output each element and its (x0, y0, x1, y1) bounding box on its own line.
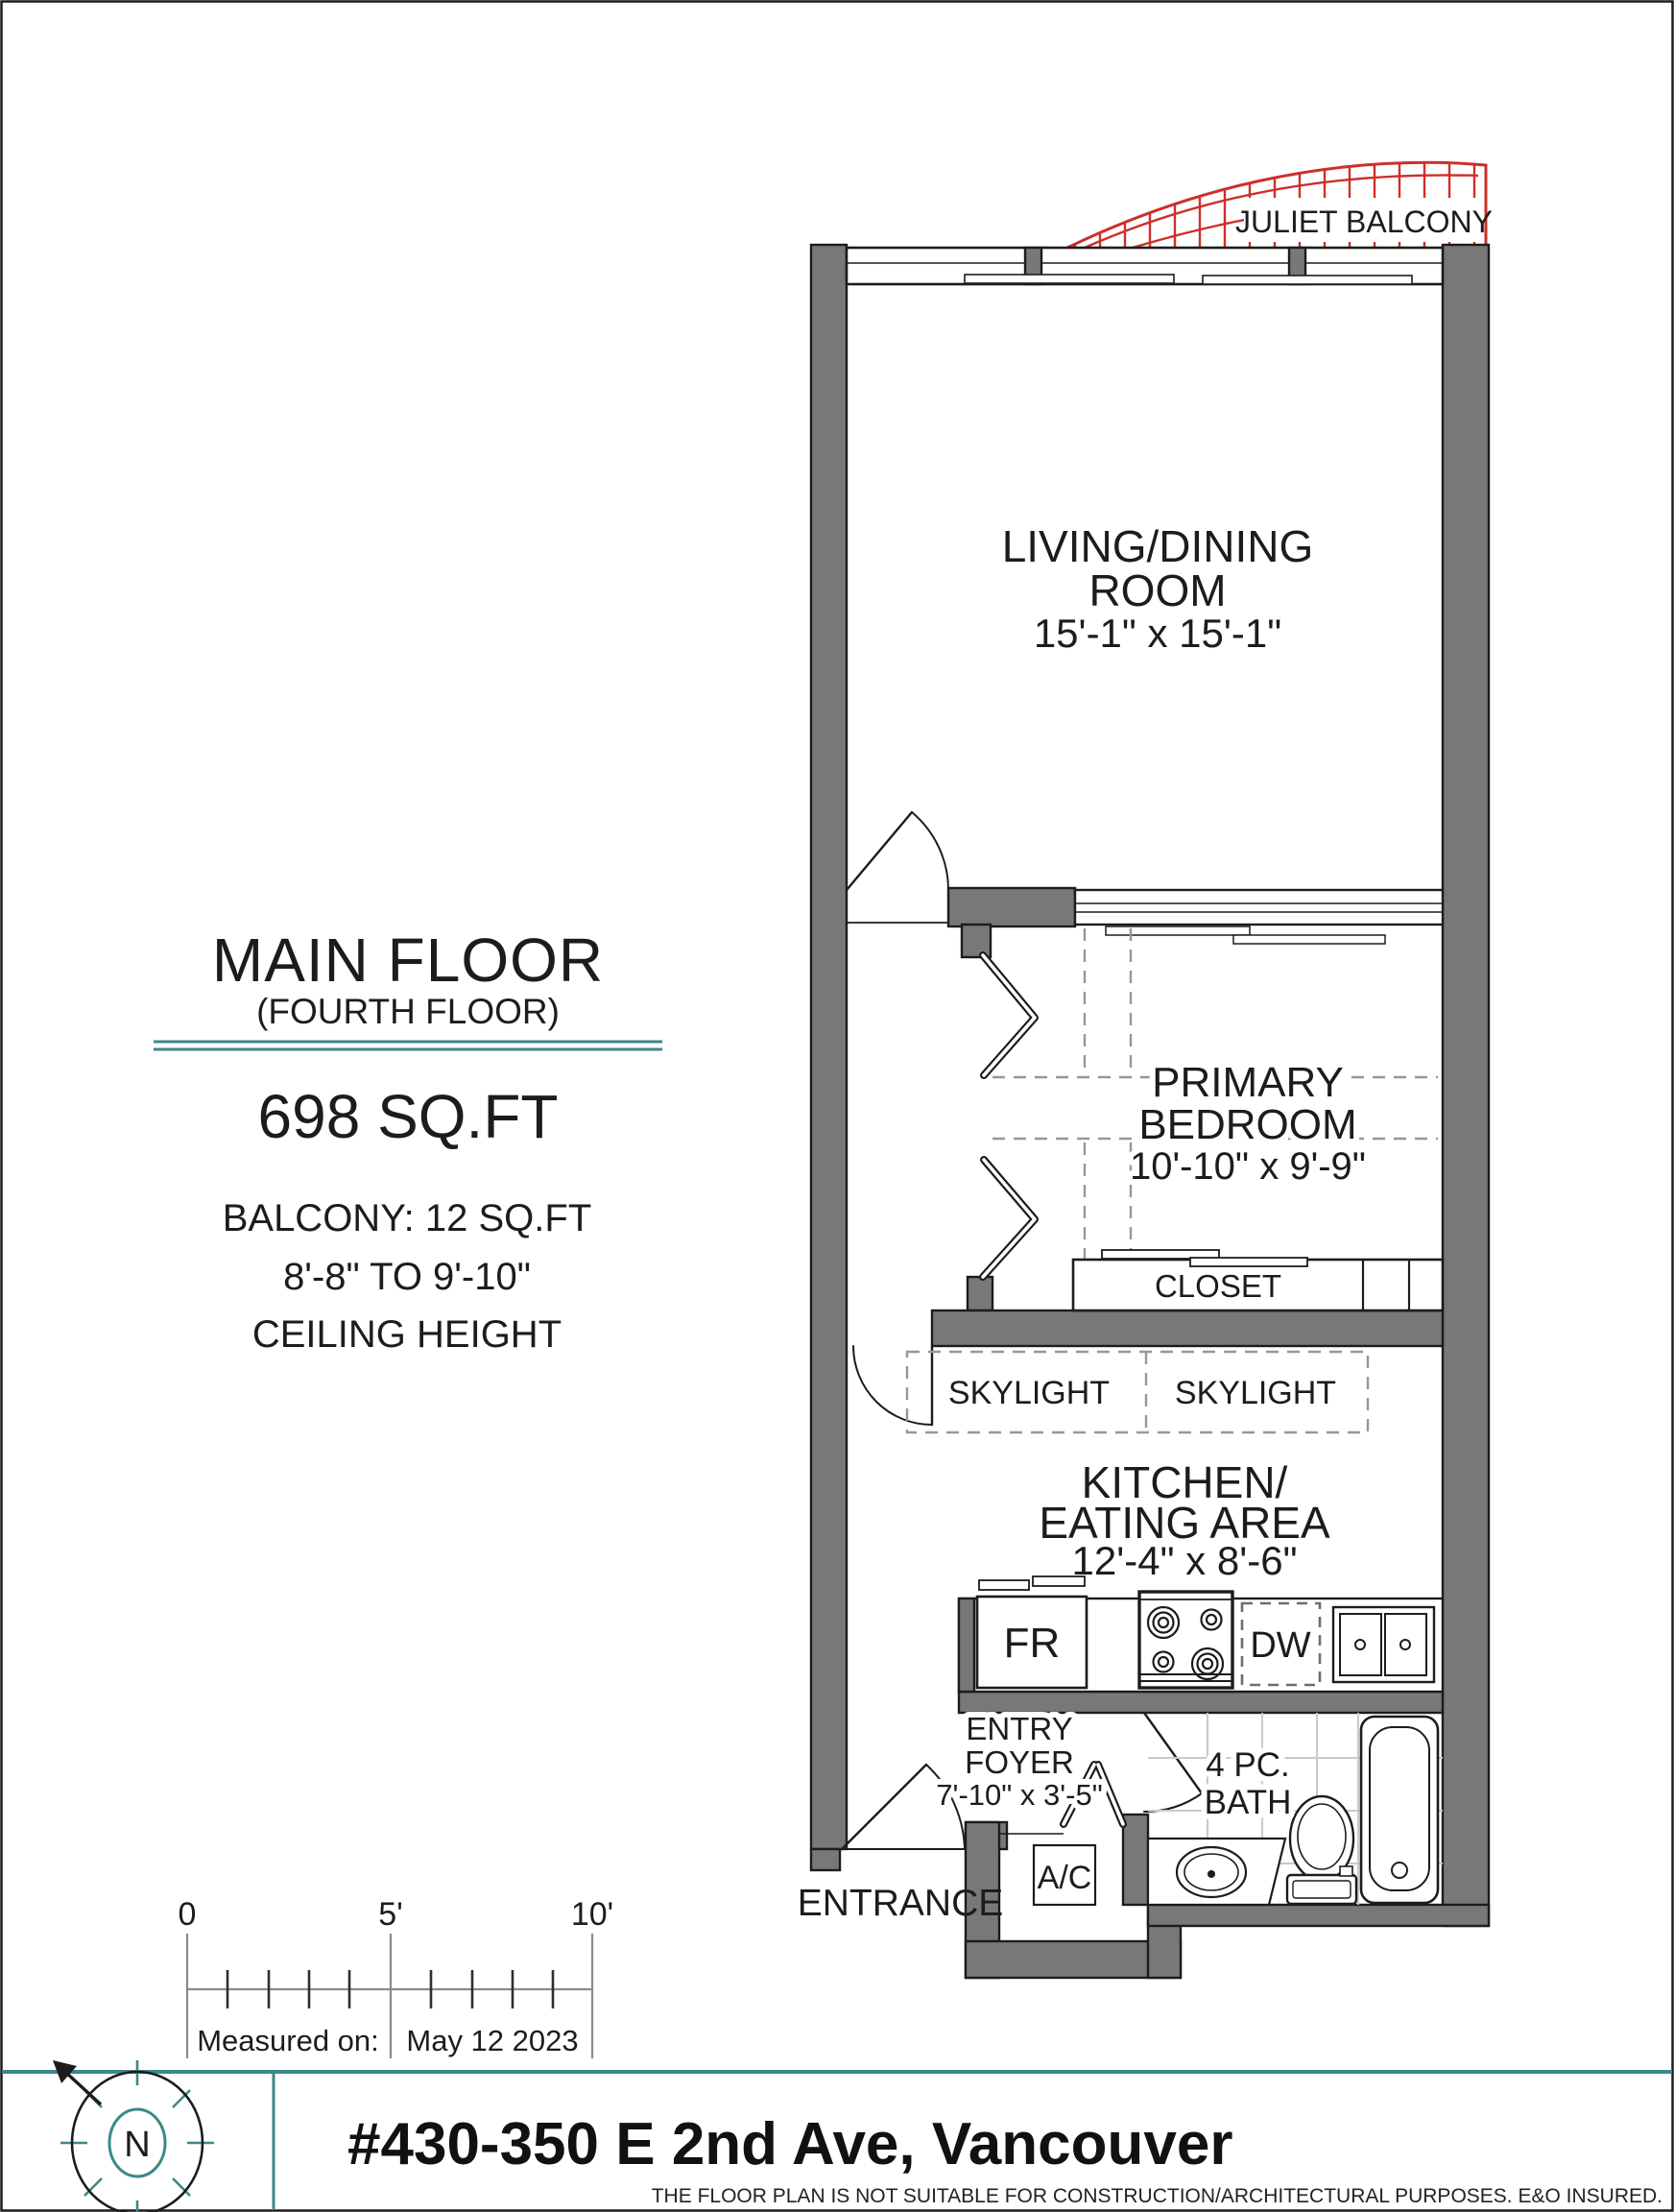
living-label-1: LIVING/DINING (1002, 521, 1314, 571)
hall-door-swing (853, 1346, 932, 1425)
bedroom-door-swing (912, 812, 948, 890)
dishwasher-label: DW (1250, 1625, 1310, 1666)
ceiling-range-label: 8'-8" TO 9'-10" (283, 1256, 531, 1298)
juliet-balcony: JULIET BALCONY (1056, 154, 1493, 248)
closet-label: CLOSET (1155, 1268, 1281, 1304)
compass-north-letter: N (124, 2125, 150, 2165)
stove (1139, 1592, 1232, 1688)
counter-end-wall (959, 1599, 974, 1692)
floor-subtitle: (FOURTH FLOOR) (256, 992, 560, 1031)
bedroom-label-2: BEDROOM (1138, 1101, 1356, 1148)
wall-kitchen-south (959, 1692, 1443, 1713)
entrance-door-leaf (842, 1765, 926, 1849)
living-label-2: ROOM (1088, 565, 1226, 615)
measured-on-label: Measured on: (197, 2024, 379, 2057)
balcony-area-label: BALCONY: 12 SQ.FT (223, 1197, 592, 1239)
kitchen-counter: FR DW (959, 1576, 1443, 1692)
bedroom-door-leaf (847, 812, 912, 890)
entry-label-1: ENTRY (966, 1711, 1072, 1746)
wall-bedroom-stub-bottom (968, 1277, 992, 1310)
bedroom-label-1: PRIMARY (1152, 1059, 1344, 1106)
scale-bar: 0 5' 10' Measured on: May 12 2023 (179, 1896, 614, 2058)
kitchen-sink (1333, 1607, 1434, 1682)
scale-tick-10: 10' (571, 1896, 613, 1933)
closet: CLOSET (1073, 1250, 1443, 1310)
skylight-right-label: SKYLIGHT (1175, 1375, 1336, 1411)
wall-left (811, 245, 847, 1849)
toilet-tank (1287, 1875, 1356, 1904)
floor-plan-page: JULIET BALCONY (0, 0, 1674, 2212)
scale-tick-5: 5' (378, 1896, 402, 1933)
entrance-label: ENTRANCE (798, 1883, 1004, 1924)
disclaimer: THE FLOOR PLAN IS NOT SUITABLE FOR CONST… (652, 2185, 1662, 2207)
scale-tick-0: 0 (179, 1896, 197, 1933)
window-sash (1233, 935, 1385, 944)
bathtub (1361, 1717, 1438, 1903)
ac-label: A/C (1038, 1860, 1092, 1896)
wall-bath-left (1123, 1815, 1148, 1905)
bathroom: 4 PC. BATH (1148, 1713, 1443, 1905)
bedroom-bifold-doors (983, 955, 1035, 1277)
area-label: 698 SQ.FT (258, 1082, 559, 1151)
bath-door-swing (1144, 1793, 1202, 1812)
window-sash (1203, 276, 1412, 284)
fridge-door (979, 1580, 1029, 1590)
address: #430-350 E 2nd Ave, Vancouver (347, 2111, 1232, 2177)
bath-door-leaf (1144, 1713, 1202, 1793)
wall-bath-bottom (1148, 1905, 1489, 1926)
bath-vanity (1148, 1839, 1285, 1905)
window-sash (1106, 926, 1250, 935)
floor-plan-drawing: JULIET BALCONY (0, 0, 1674, 2212)
wall-living-bedroom (948, 888, 1075, 926)
wall-right (1443, 245, 1489, 1926)
entry-dims: 7'-10" x 3'-5" (936, 1778, 1102, 1812)
bath-label-2: BATH (1205, 1784, 1292, 1821)
title-block: MAIN FLOOR (FOURTH FLOOR) 698 SQ.FT BALC… (154, 926, 662, 1356)
window-sash (965, 275, 1174, 283)
measured-date: May 12 2023 (406, 2024, 578, 2057)
living-dims: 15'-1" x 15'-1" (1034, 611, 1281, 656)
toilet (1287, 1796, 1356, 1904)
wall-bedroom-kitchen (932, 1310, 1443, 1346)
north-compass-icon: N (53, 2060, 214, 2212)
skylight-left-label: SKYLIGHT (948, 1375, 1110, 1411)
closet-slider (1190, 1258, 1307, 1266)
wall-bedroom-stub-top (962, 925, 991, 957)
kitchen-dims: 12'-4" x 8'-6" (1072, 1538, 1298, 1583)
ceiling-height-label: CEILING HEIGHT (252, 1313, 562, 1356)
juliet-balcony-label: JULIET BALCONY (1235, 204, 1493, 239)
entry-label-2: FOYER (965, 1744, 1074, 1780)
bedroom-dims: 10'-10" x 9'-9" (1130, 1145, 1366, 1188)
fridge-label: FR (1004, 1620, 1061, 1667)
floor-title: MAIN FLOOR (212, 926, 604, 995)
skylights: SKYLIGHT SKYLIGHT (907, 1352, 1368, 1432)
wall-entrance-corner (811, 1849, 840, 1870)
footer: N #430-350 E 2nd Ave, Vancouver THE FLOO… (2, 2060, 1672, 2212)
bath-label-1: 4 PC. (1206, 1746, 1290, 1784)
window-band-bedroom (1075, 890, 1443, 925)
ac-closet: A/C (999, 1834, 1095, 1905)
